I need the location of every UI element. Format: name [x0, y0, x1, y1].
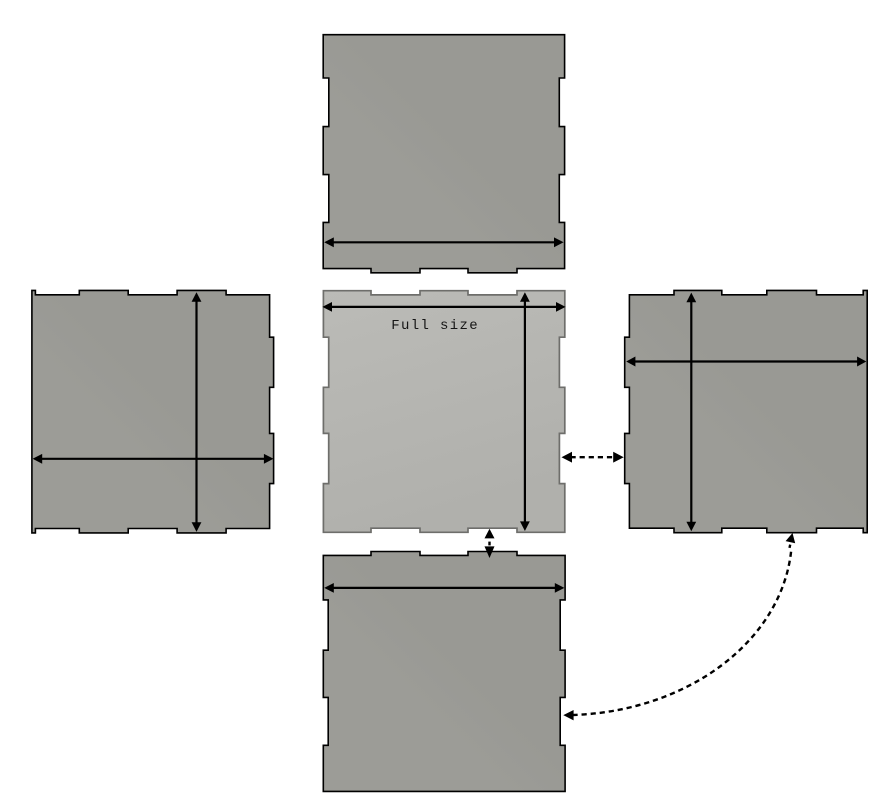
svg-text:Full size: Full size — [391, 318, 479, 334]
